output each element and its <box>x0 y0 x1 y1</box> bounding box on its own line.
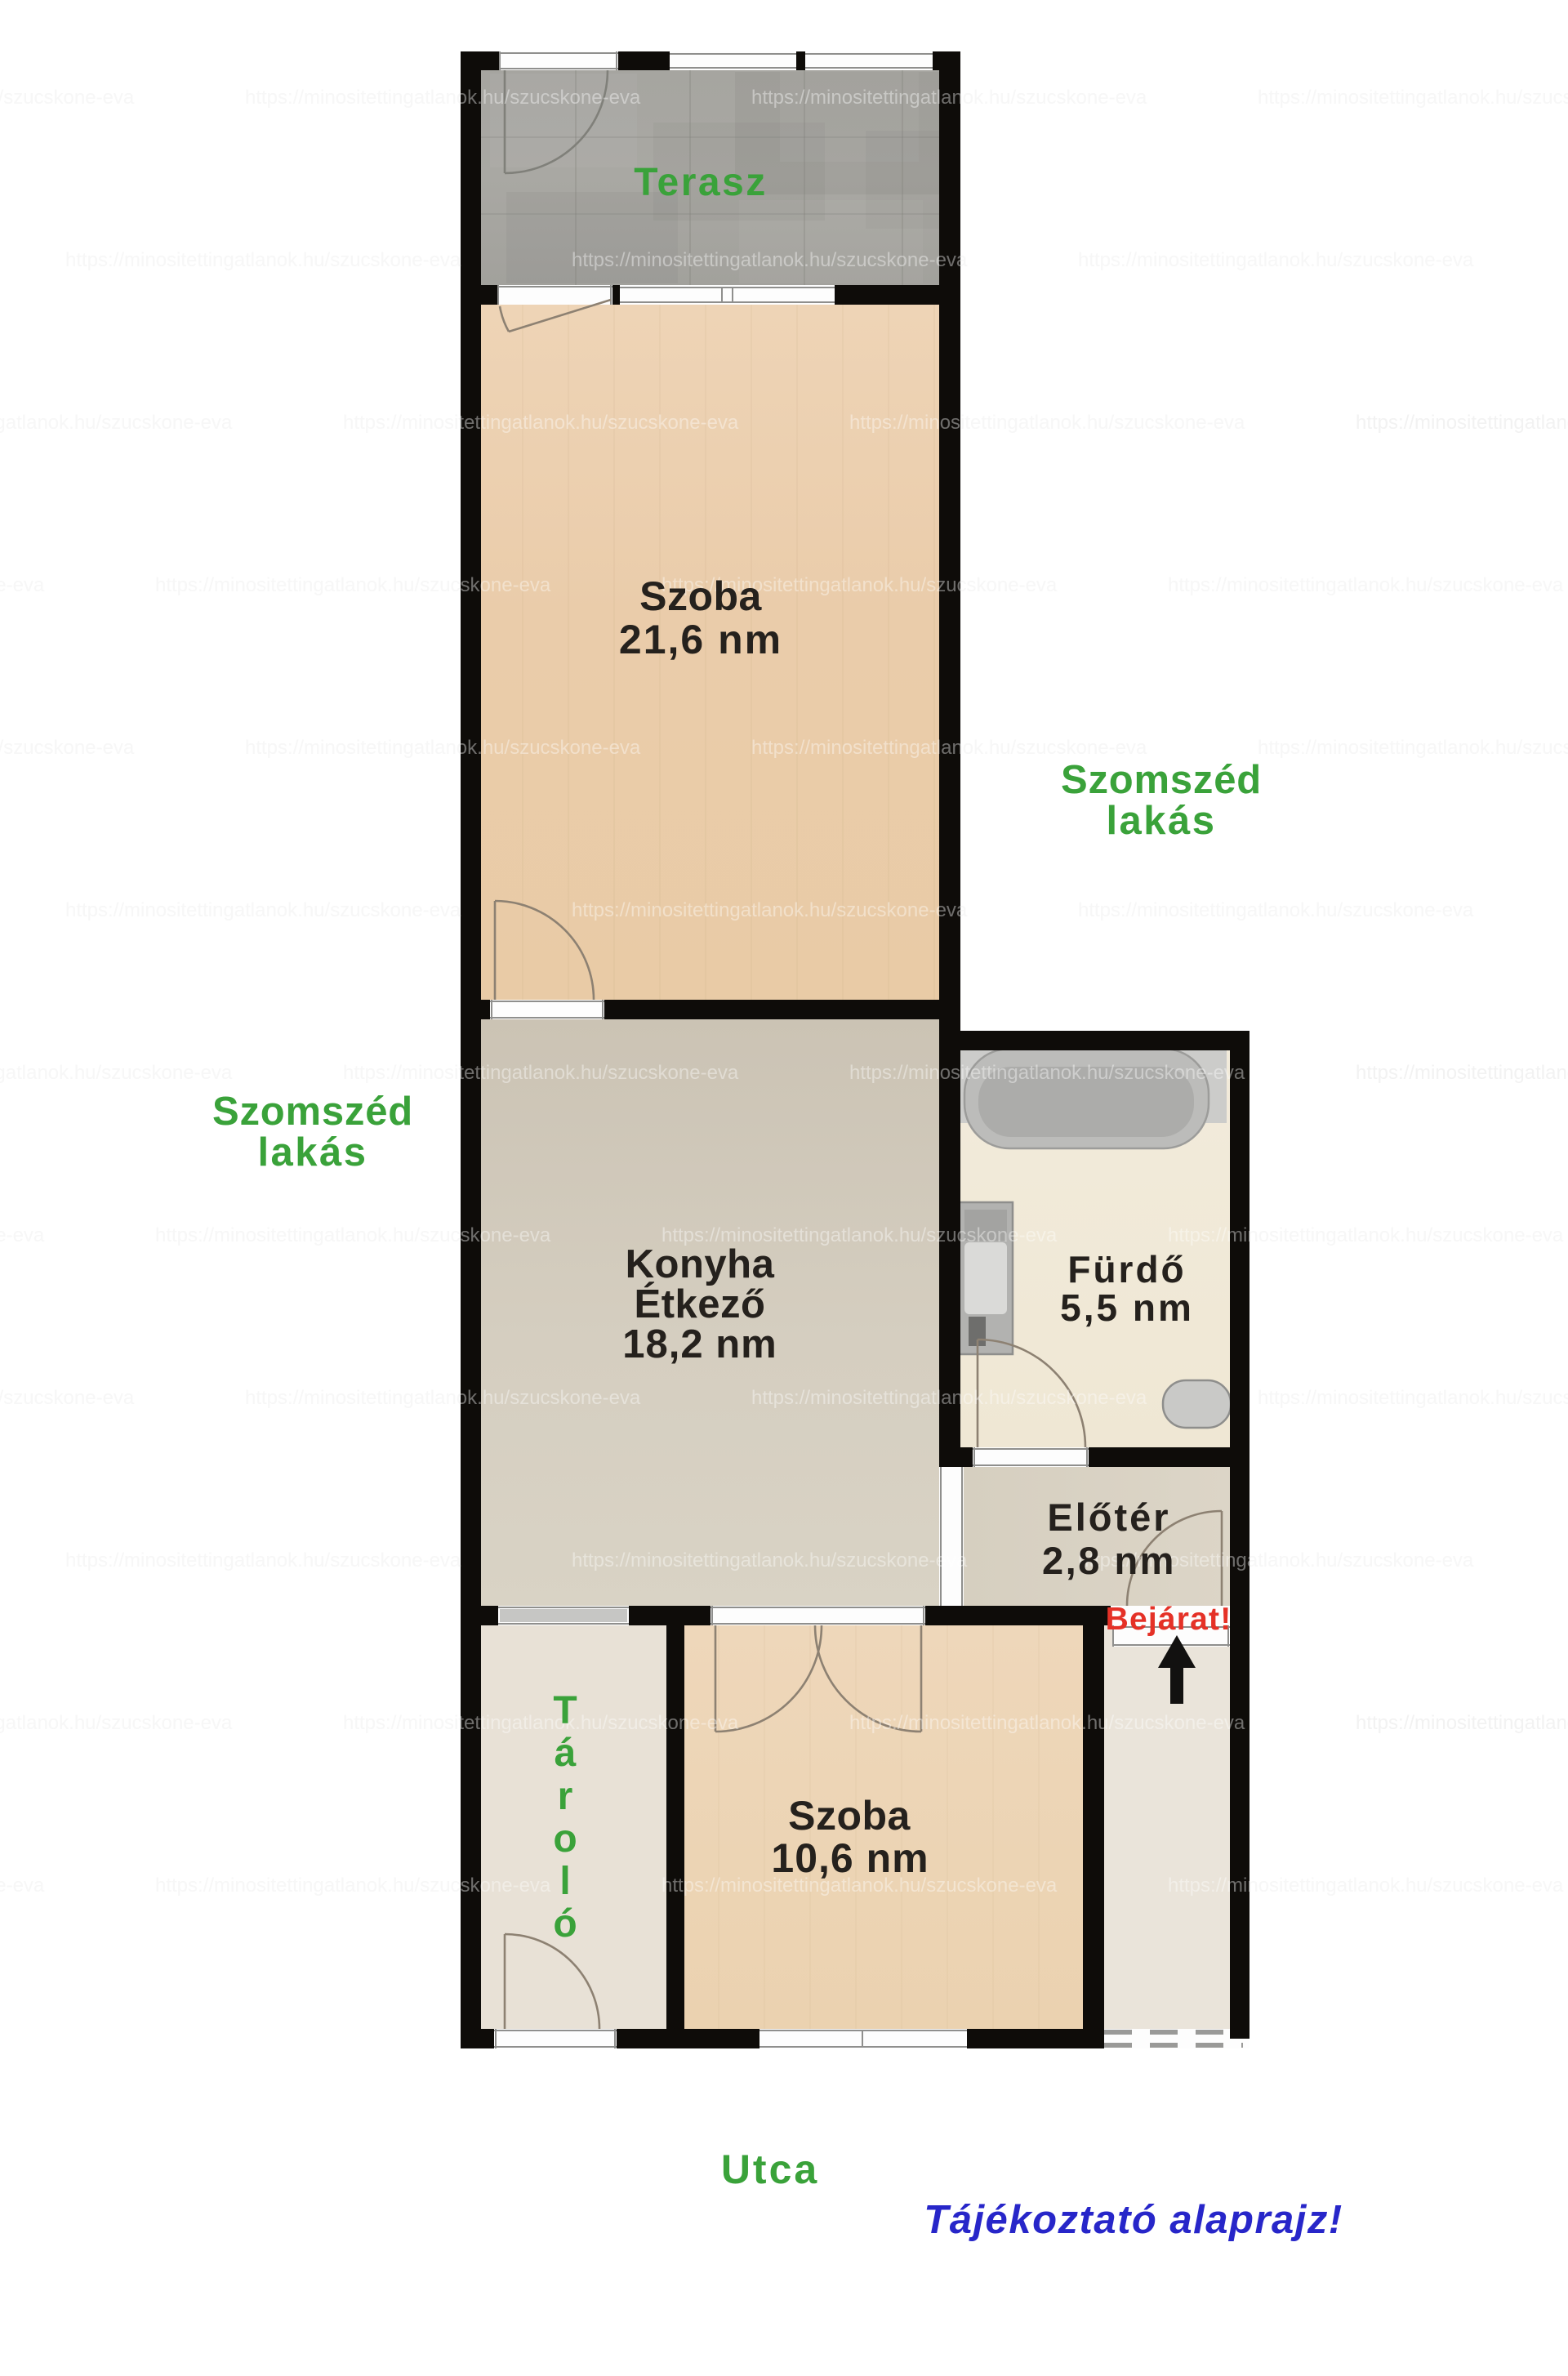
svg-text:https://minositettingatlanok.h: https://minositettingatlanok.hu/szucskon… <box>343 1712 739 1734</box>
svg-text:https://minositettingatlanok.h: https://minositettingatlanok.hu/szucskon… <box>572 1549 968 1571</box>
svg-text:https://minositettingatlanok.h: https://minositettingatlanok.hu/szucskon… <box>1168 1874 1564 1897</box>
svg-text:lakás: lakás <box>257 1130 367 1175</box>
svg-text:https://minositettingatlanok.h: https://minositettingatlanok.hu/szucskon… <box>751 1387 1147 1409</box>
svg-text:https://minositettingatlanok.h: https://minositettingatlanok.hu/szucskon… <box>849 1712 1245 1734</box>
svg-text:https://minositettingatlanok.h: https://minositettingatlanok.hu/szucskon… <box>155 574 551 596</box>
svg-text:https://minositettingatlanok.h: https://minositettingatlanok.hu/szucskon… <box>849 412 1245 434</box>
svg-text:18,2 nm: 18,2 nm <box>622 1322 777 1366</box>
svg-text:Bejárat!: Bejárat! <box>1106 1602 1232 1637</box>
svg-text:https://minositettingatlanok.h: https://minositettingatlanok.hu/szucskon… <box>65 249 461 271</box>
svg-text:T: T <box>553 1689 577 1732</box>
svg-text:https://minositettingatlanok.h: https://minositettingatlanok.hu/szucskon… <box>1258 1387 1568 1409</box>
svg-text:Szomszéd: Szomszéd <box>1061 758 1262 802</box>
svg-text:o: o <box>553 1817 577 1861</box>
svg-text:Előtér: Előtér <box>1047 1496 1170 1539</box>
svg-text:Tájékoztató alaprajz!: Tájékoztató alaprajz! <box>924 2198 1343 2242</box>
svg-text:Fürdő: Fürdő <box>1067 1248 1186 1291</box>
svg-text:https://minositettingatlanok.h: https://minositettingatlanok.hu/szucskon… <box>0 1062 233 1084</box>
svg-text:2,8 nm: 2,8 nm <box>1042 1539 1176 1582</box>
svg-text:Étkező: Étkező <box>635 1282 766 1326</box>
svg-text:https://minositettingatlanok.h: https://minositettingatlanok.hu/szucskon… <box>572 249 968 271</box>
svg-text:https://minositettingatlanok.h: https://minositettingatlanok.hu/szucskon… <box>0 1387 135 1409</box>
svg-text:Szomszéd: Szomszéd <box>212 1090 413 1134</box>
svg-text:Utca: Utca <box>721 2146 819 2192</box>
svg-text:lakás: lakás <box>1106 799 1216 843</box>
svg-text:https://minositettingatlanok.h: https://minositettingatlanok.hu/szucskon… <box>245 1387 641 1409</box>
svg-text:https://minositettingatlanok.h: https://minositettingatlanok.hu/szucskon… <box>1078 899 1474 921</box>
svg-text:https://minositettingatlanok.h: https://minositettingatlanok.hu/szucskon… <box>1168 574 1564 596</box>
svg-text:r: r <box>558 1775 573 1818</box>
svg-text:https://minositettingatlanok.h: https://minositettingatlanok.hu/szucskon… <box>572 899 968 921</box>
svg-text:l: l <box>559 1860 570 1903</box>
svg-text:https://minositettingatlanok.h: https://minositettingatlanok.hu/szucskon… <box>1356 1062 1568 1084</box>
svg-text:https://minositettingatlanok.h: https://minositettingatlanok.hu/szucskon… <box>245 87 641 109</box>
svg-text:https://minositettingatlanok.h: https://minositettingatlanok.hu/szucskon… <box>751 87 1147 109</box>
svg-text:https://minositettingatlanok.h: https://minositettingatlanok.hu/szucskon… <box>0 1224 45 1246</box>
svg-text:https://minositettingatlanok.h: https://minositettingatlanok.hu/szucskon… <box>343 1062 739 1084</box>
svg-text:Szoba: Szoba <box>788 1793 911 1839</box>
svg-text:https://minositettingatlanok.h: https://minositettingatlanok.hu/szucskon… <box>1078 249 1474 271</box>
svg-text:10,6 nm: 10,6 nm <box>771 1835 929 1881</box>
svg-text:https://minositettingatlanok.h: https://minositettingatlanok.hu/szucskon… <box>0 737 135 759</box>
svg-text:https://minositettingatlanok.h: https://minositettingatlanok.hu/szucskon… <box>343 412 739 434</box>
svg-text:https://minositettingatlanok.h: https://minositettingatlanok.hu/szucskon… <box>0 574 45 596</box>
svg-text:Terasz: Terasz <box>634 161 768 204</box>
svg-text:https://minositettingatlanok.h: https://minositettingatlanok.hu/szucskon… <box>849 1062 1245 1084</box>
svg-text:https://minositettingatlanok.h: https://minositettingatlanok.hu/szucskon… <box>1258 737 1568 759</box>
svg-text:https://minositettingatlanok.h: https://minositettingatlanok.hu/szucskon… <box>1356 1712 1568 1734</box>
svg-text:https://minositettingatlanok.h: https://minositettingatlanok.hu/szucskon… <box>1258 87 1568 109</box>
svg-text:á: á <box>555 1732 577 1775</box>
svg-text:https://minositettingatlanok.h: https://minositettingatlanok.hu/szucskon… <box>0 1712 233 1734</box>
svg-text:https://minositettingatlanok.h: https://minositettingatlanok.hu/szucskon… <box>1356 412 1568 434</box>
svg-text:https://minositettingatlanok.h: https://minositettingatlanok.hu/szucskon… <box>155 1874 551 1897</box>
svg-text:https://minositettingatlanok.h: https://minositettingatlanok.hu/szucskon… <box>245 737 641 759</box>
svg-text:https://minositettingatlanok.h: https://minositettingatlanok.hu/szucskon… <box>1168 1224 1564 1246</box>
svg-text:https://minositettingatlanok.h: https://minositettingatlanok.hu/szucskon… <box>155 1224 551 1246</box>
svg-text:ó: ó <box>553 1902 577 1946</box>
svg-text:https://minositettingatlanok.h: https://minositettingatlanok.hu/szucskon… <box>0 412 233 434</box>
svg-text:https://minositettingatlanok.h: https://minositettingatlanok.hu/szucskon… <box>65 1549 461 1571</box>
svg-text:5,5 nm: 5,5 nm <box>1060 1286 1194 1329</box>
svg-text:https://minositettingatlanok.h: https://minositettingatlanok.hu/szucskon… <box>0 1874 45 1897</box>
svg-text:https://minositettingatlanok.h: https://minositettingatlanok.hu/szucskon… <box>0 87 135 109</box>
svg-text:Szoba: Szoba <box>639 573 762 619</box>
svg-text:https://minositettingatlanok.h: https://minositettingatlanok.hu/szucskon… <box>65 899 461 921</box>
svg-text:https://minositettingatlanok.h: https://minositettingatlanok.hu/szucskon… <box>751 737 1147 759</box>
svg-text:Konyha: Konyha <box>626 1242 775 1286</box>
svg-text:21,6 nm: 21,6 nm <box>619 617 782 662</box>
